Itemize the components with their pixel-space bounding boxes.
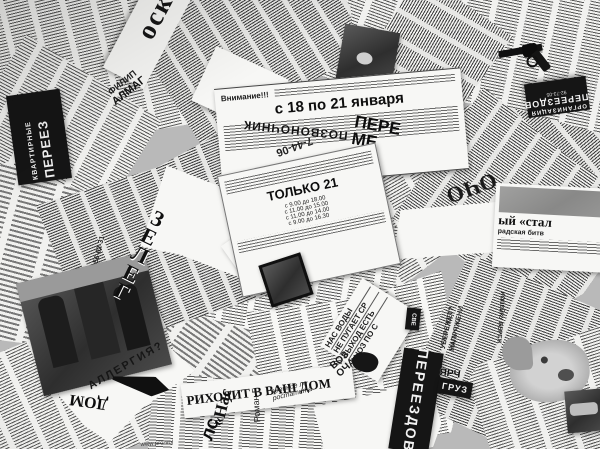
dog-ear: [501, 335, 533, 371]
stal-body: [497, 237, 600, 255]
photo-highlight: [355, 51, 373, 66]
car-photo: [564, 389, 600, 434]
car-roof: [569, 401, 599, 416]
newspaper-collage: осква КВАРТИРНЫЕ ПЕРЕЕЗ ФИЛИП АЛМАГ Вним…: [0, 0, 600, 449]
stal-headline-scrap: ый «стал радская битв: [492, 183, 600, 273]
portrait-photo: [262, 256, 310, 304]
sve-chip: СВЕ: [405, 307, 421, 330]
figure: [36, 294, 78, 368]
